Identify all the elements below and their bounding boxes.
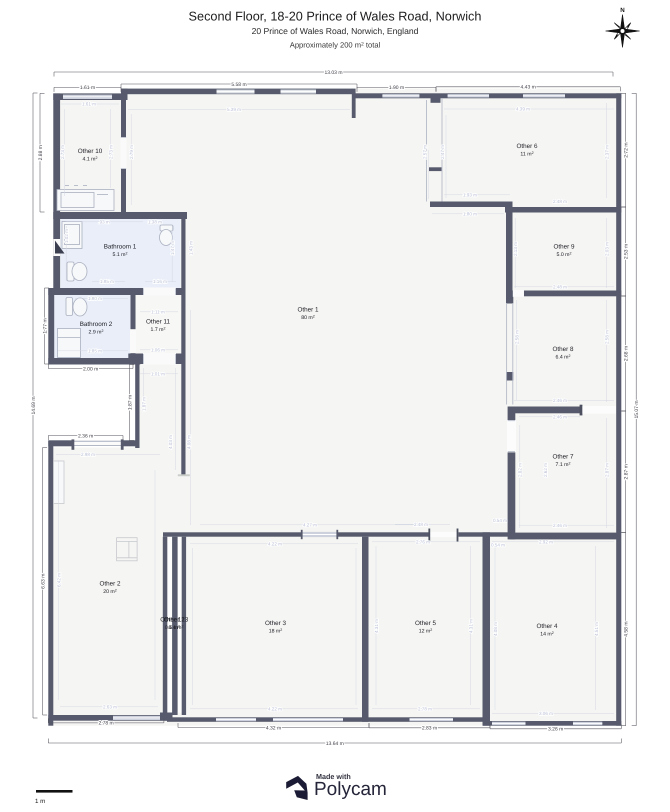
svg-text:1.87 m: 1.87 m xyxy=(142,397,147,411)
svg-text:Other 1: Other 1 xyxy=(298,307,319,314)
svg-text:2.03 m: 2.03 m xyxy=(605,242,610,256)
svg-text:13.03 m: 13.03 m xyxy=(324,70,342,76)
svg-text:4.32 m: 4.32 m xyxy=(266,725,281,731)
svg-text:N: N xyxy=(620,7,625,14)
svg-text:4.31 m: 4.31 m xyxy=(374,619,379,633)
svg-text:5.0 m2: 5.0 m2 xyxy=(557,251,572,258)
svg-text:Polycam: Polycam xyxy=(314,779,387,800)
svg-text:1.80 m: 1.80 m xyxy=(88,296,102,301)
svg-text:80 m2: 80 m2 xyxy=(301,314,315,321)
svg-text:18 m2: 18 m2 xyxy=(269,628,283,635)
svg-text:0.4 m2: 0.4 m2 xyxy=(169,624,184,631)
svg-text:Bathroom 2: Bathroom 2 xyxy=(80,321,113,328)
svg-text:4.22 m: 4.22 m xyxy=(268,707,282,712)
svg-text:2.73 m: 2.73 m xyxy=(60,145,65,159)
svg-text:7.1 m2: 7.1 m2 xyxy=(556,461,571,468)
svg-text:2.73 m: 2.73 m xyxy=(109,145,114,159)
svg-text:6.42 m: 6.42 m xyxy=(57,573,62,587)
svg-text:2.46 m: 2.46 m xyxy=(553,415,567,420)
svg-text:1.47 m: 1.47 m xyxy=(170,241,175,255)
svg-text:15.07 m: 15.07 m xyxy=(634,400,640,418)
svg-text:2.9 m2: 2.9 m2 xyxy=(89,329,104,336)
svg-text:4.22 m: 4.22 m xyxy=(268,542,282,547)
svg-text:2.47 m: 2.47 m xyxy=(440,145,445,159)
svg-text:2.72 m: 2.72 m xyxy=(624,143,630,158)
svg-text:2.46 m: 2.46 m xyxy=(553,523,567,528)
svg-text:Other 8: Other 8 xyxy=(553,346,574,353)
svg-text:4.39 m: 4.39 m xyxy=(516,107,530,112)
svg-text:Other 9: Other 9 xyxy=(554,244,575,251)
svg-text:Other 3: Other 3 xyxy=(265,620,286,627)
svg-text:2.82 m: 2.82 m xyxy=(518,463,523,477)
svg-text:Bathroom 1: Bathroom 1 xyxy=(104,244,137,251)
svg-text:1.85 m: 1.85 m xyxy=(100,279,114,284)
svg-text:2.58 m: 2.58 m xyxy=(515,330,520,344)
svg-text:1.38 m: 1.38 m xyxy=(148,220,162,225)
svg-text:14 m2: 14 m2 xyxy=(540,631,554,638)
svg-text:5.1 m2: 5.1 m2 xyxy=(113,251,128,258)
svg-text:Other 5: Other 5 xyxy=(415,620,436,627)
svg-text:5.39 m: 5.39 m xyxy=(227,107,241,112)
svg-text:1.7 m2: 1.7 m2 xyxy=(151,326,166,333)
svg-text:4.03 m: 4.03 m xyxy=(168,435,173,449)
svg-text:2.78 m: 2.78 m xyxy=(98,721,113,727)
svg-text:1.01 m: 1.01 m xyxy=(151,372,165,377)
svg-text:4.1 m2: 4.1 m2 xyxy=(83,156,98,163)
svg-text:1.90 m: 1.90 m xyxy=(389,85,404,91)
svg-text:1.85 m: 1.85 m xyxy=(88,349,102,354)
svg-text:1.80 m: 1.80 m xyxy=(463,212,477,217)
svg-text:14.69 m: 14.69 m xyxy=(31,396,37,414)
svg-text:Other 11: Other 11 xyxy=(146,319,171,326)
svg-text:4.27 m: 4.27 m xyxy=(303,523,317,528)
svg-text:1 m: 1 m xyxy=(35,798,45,805)
svg-text:2.92 m: 2.92 m xyxy=(539,540,553,545)
svg-text:1.87 m: 1.87 m xyxy=(127,395,133,410)
svg-text:Second Floor, 18-20 Prince of: Second Floor, 18-20 Prince of Wales Road… xyxy=(189,10,482,24)
svg-text:2.68 m: 2.68 m xyxy=(624,346,630,361)
svg-text:2.76 m: 2.76 m xyxy=(416,540,430,545)
svg-text:Other 6: Other 6 xyxy=(517,143,538,150)
svg-text:2.48 m: 2.48 m xyxy=(553,199,567,204)
svg-text:2.46 m: 2.46 m xyxy=(553,398,567,403)
svg-text:1.93 m: 1.93 m xyxy=(463,193,477,198)
svg-text:2.58 m: 2.58 m xyxy=(605,330,610,344)
svg-text:4.31 m: 4.31 m xyxy=(469,619,474,633)
svg-text:2.78 m: 2.78 m xyxy=(418,707,432,712)
svg-text:2.98 m: 2.98 m xyxy=(81,452,95,457)
svg-text:1.77 m: 1.77 m xyxy=(42,318,48,333)
svg-text:4.08 m: 4.08 m xyxy=(493,622,498,636)
svg-text:2.48 m: 2.48 m xyxy=(553,285,567,290)
svg-text:0.54 m: 0.54 m xyxy=(491,543,505,548)
svg-text:6.63 m: 6.63 m xyxy=(40,574,46,589)
svg-text:4.51 m: 4.51 m xyxy=(594,622,599,636)
svg-text:Other 10: Other 10 xyxy=(78,148,103,155)
svg-text:2.63 m: 2.63 m xyxy=(103,705,117,710)
svg-text:1.61 m: 1.61 m xyxy=(80,85,95,91)
svg-text:Other 4: Other 4 xyxy=(537,623,558,630)
svg-text:Other 2: Other 2 xyxy=(100,581,121,588)
svg-text:Other 7: Other 7 xyxy=(553,454,574,461)
svg-text:2.87 m: 2.87 m xyxy=(605,463,610,477)
svg-text:4.43 m: 4.43 m xyxy=(521,85,536,91)
svg-text:2.13 m: 2.13 m xyxy=(513,242,518,256)
svg-text:Other 13: Other 13 xyxy=(164,617,189,624)
svg-text:1.02 m: 1.02 m xyxy=(64,229,69,243)
svg-text:2.83 m: 2.83 m xyxy=(422,726,437,732)
svg-text:13.64 m: 13.64 m xyxy=(326,741,344,747)
svg-text:6.4 m2: 6.4 m2 xyxy=(556,354,571,361)
svg-text:2.88 m: 2.88 m xyxy=(38,145,44,160)
svg-text:2.57 m: 2.57 m xyxy=(423,145,428,159)
svg-text:3.06 m: 3.06 m xyxy=(539,711,553,716)
svg-text:2.62 m: 2.62 m xyxy=(543,463,548,477)
svg-text:12 m2: 12 m2 xyxy=(419,628,433,635)
svg-text:2.36 m: 2.36 m xyxy=(78,433,93,439)
svg-text:1.06 m: 1.06 m xyxy=(151,348,165,353)
svg-text:1.16 m: 1.16 m xyxy=(153,279,167,284)
svg-text:2.48 m: 2.48 m xyxy=(414,522,428,527)
svg-text:1.11 m: 1.11 m xyxy=(151,310,165,315)
svg-text:5.58 m: 5.58 m xyxy=(231,82,246,88)
svg-text:2.37 m: 2.37 m xyxy=(605,145,610,159)
svg-text:0.54 m: 0.54 m xyxy=(493,518,507,523)
svg-text:4.08 m: 4.08 m xyxy=(187,435,192,449)
svg-text:1.61 m: 1.61 m xyxy=(82,102,96,107)
svg-text:2.53 m: 2.53 m xyxy=(624,244,630,259)
svg-text:1.43 m: 1.43 m xyxy=(189,241,194,255)
svg-text:3.26 m: 3.26 m xyxy=(548,727,563,733)
svg-text:20 Prince of Wales Road, Norwi: 20 Prince of Wales Road, Norwich, Englan… xyxy=(252,26,419,36)
svg-text:2.87 m: 2.87 m xyxy=(624,464,630,479)
svg-text:.93 m: .93 m xyxy=(98,220,110,225)
svg-text:Approximately 200 m2 total: Approximately 200 m2 total xyxy=(290,41,381,50)
svg-text:20 m2: 20 m2 xyxy=(103,588,117,595)
svg-text:2.79 m: 2.79 m xyxy=(129,145,134,159)
svg-text:2.00 m: 2.00 m xyxy=(83,366,98,372)
svg-text:4.58 m: 4.58 m xyxy=(624,622,630,637)
